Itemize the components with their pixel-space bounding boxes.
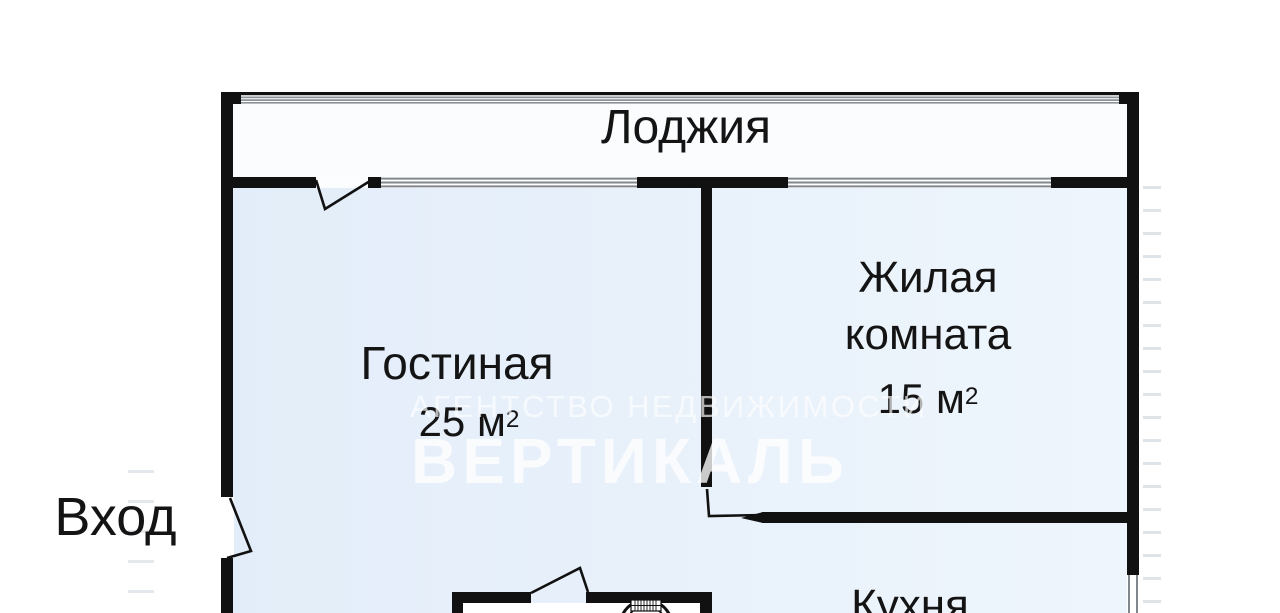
loggia-label: Лоджия [546, 104, 826, 152]
kitchen-window [1127, 575, 1139, 613]
living-room-label: Гостиная [337, 340, 577, 386]
right-wall [1127, 92, 1139, 575]
loggia-bottom-wall-right [1051, 177, 1139, 188]
bathroom-left-wall [452, 592, 463, 613]
bathroom-top-wall-left [452, 592, 531, 603]
loggia-bottom-wall-left [221, 177, 316, 188]
bedroom-label-line2: комната [808, 313, 1048, 357]
loggia-window-right [788, 177, 1051, 188]
watermark-brand-line: ВЕРТИКАЛЬ [411, 429, 849, 493]
bedroom-label-line1: Жилая [808, 256, 1048, 300]
watermark-agency-line: АГЕНТСТВО НЕДВИЖИМОСТИ [410, 391, 928, 422]
loggia-bottom-wall-center [637, 177, 788, 188]
bathroom-right-wall [700, 592, 712, 613]
floor-plan: Лоджия Гостиная 25 м2 Жилая комната 15 м… [0, 0, 1280, 613]
kitchen-wall [762, 512, 1127, 523]
loggia-window-left [381, 177, 637, 188]
entrance-label: Вход [43, 490, 188, 544]
floor-plan-drawing [0, 0, 1280, 613]
kitchen-label: Кухня [790, 584, 1030, 613]
left-wall-upper [221, 92, 233, 497]
left-wall-lower [221, 558, 233, 613]
